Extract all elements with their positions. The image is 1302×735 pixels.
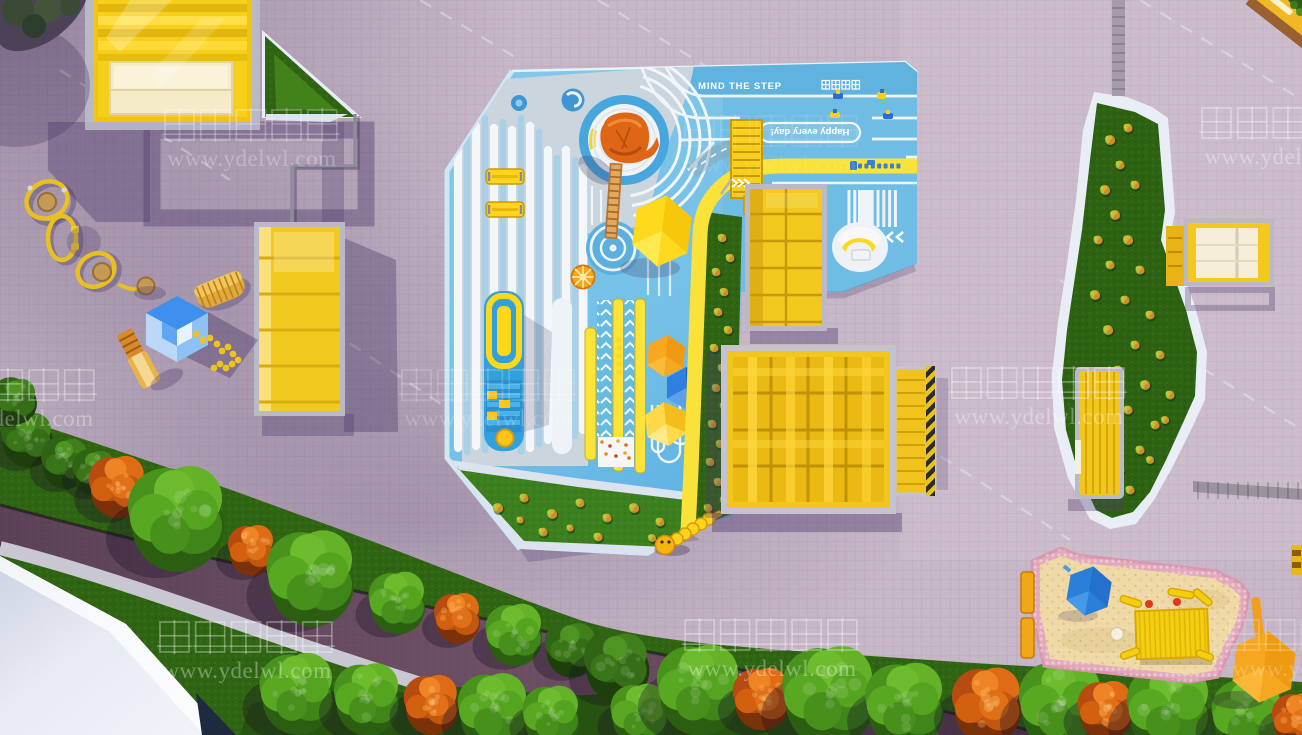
svg-text:www.ydelwl.com: www.ydelwl.com (404, 406, 573, 431)
svg-text:www.ydelwl.com: www.ydelwl.com (1232, 656, 1302, 681)
svg-text:www.ydelwl.com: www.ydelwl.com (1204, 144, 1302, 169)
svg-text:www.ydelwl.com: www.ydelwl.com (687, 152, 856, 177)
svg-text:www.ydelwl.com: www.ydelwl.com (0, 406, 94, 431)
svg-text:www.ydelwl.com: www.ydelwl.com (954, 404, 1123, 429)
svg-text:MIND THE STEP: MIND THE STEP (698, 81, 782, 92)
svg-text:www.ydelwl.com: www.ydelwl.com (687, 656, 856, 681)
svg-text:Happy every day!: Happy every day! (771, 126, 850, 137)
svg-text:www.ydelwl.com: www.ydelwl.com (162, 658, 331, 683)
svg-text:www.ydelwl.com: www.ydelwl.com (167, 146, 336, 171)
